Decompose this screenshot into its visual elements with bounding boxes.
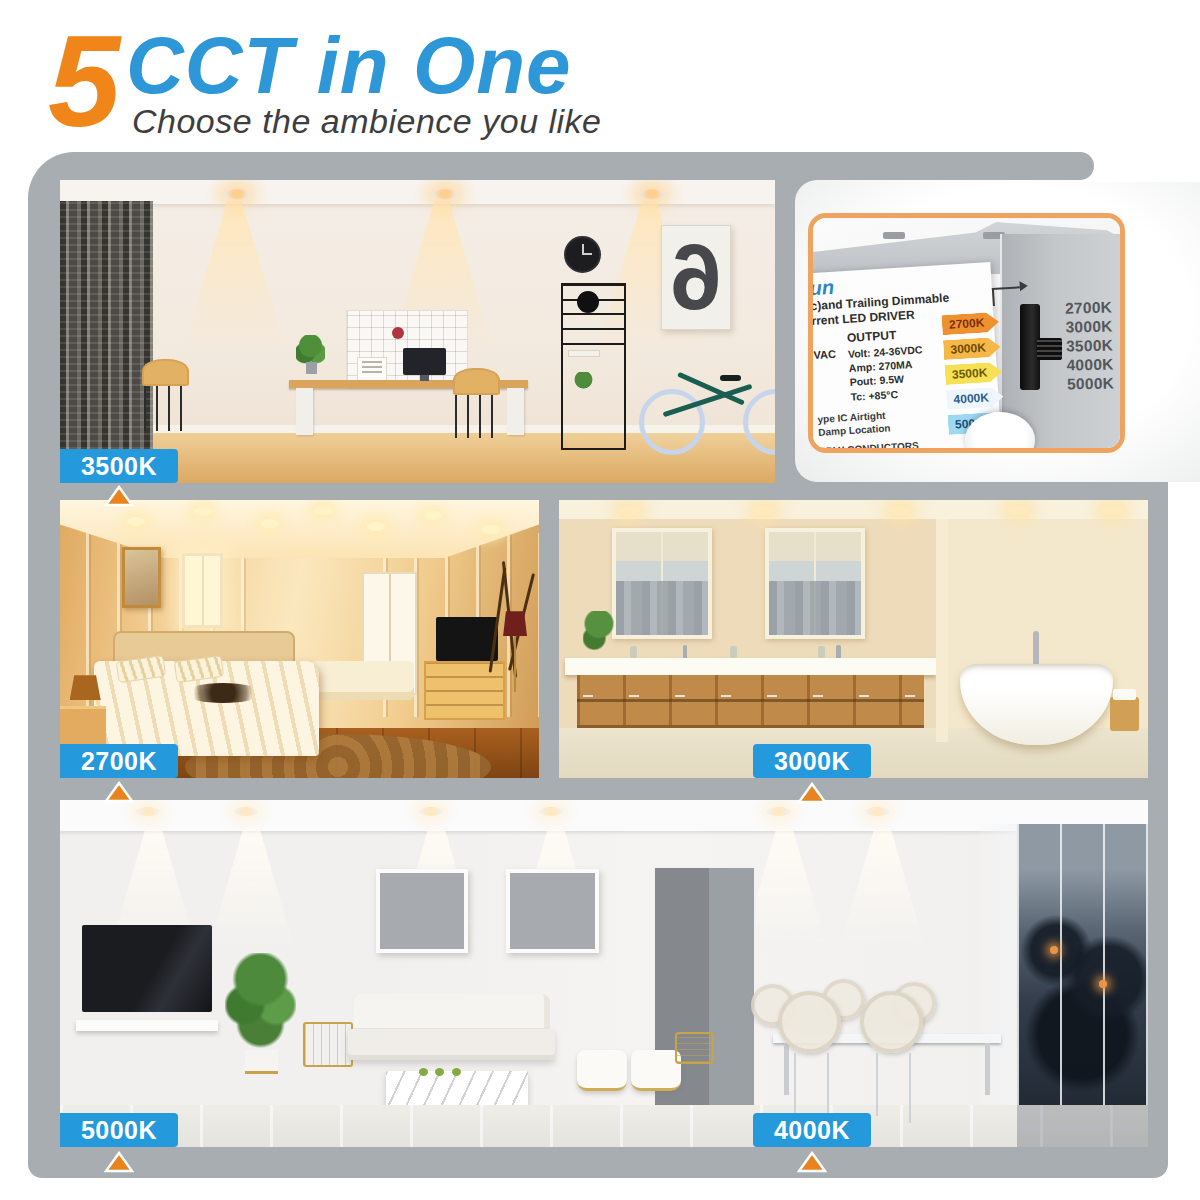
office-chair-legs: [455, 395, 498, 437]
counter-bottle: [818, 646, 825, 659]
cct-tag-3500k: 3500K: [944, 362, 1002, 385]
photo-home-office-3500k: 6: [60, 180, 775, 483]
cct-tag-4000k: 4000K: [946, 387, 1004, 410]
cct-label-2700k: 2700K: [60, 744, 178, 778]
wall-clock: [564, 236, 601, 273]
cct-label-3000k: 3000K: [753, 744, 871, 778]
sink-faucet: [683, 645, 688, 659]
recessed-downlight: [136, 807, 160, 816]
shelf-plant: [571, 372, 595, 390]
poster-number: 6: [670, 225, 721, 330]
cct-switch-knob: [1037, 338, 1062, 360]
recessed-downlight: [539, 807, 563, 816]
living-plant: [225, 953, 296, 1057]
scale-4000k: 4000K: [1066, 354, 1114, 374]
ceiling-light: [314, 506, 332, 515]
nightstand: [60, 706, 106, 748]
scale-2700k: 2700K: [1065, 297, 1113, 317]
bedroom-sofa: [309, 661, 414, 700]
cct-switch-scale: 2700K 3000K 3500K 4000K 5000K: [1065, 297, 1115, 393]
driver-input-fragment: VAC: [813, 348, 839, 406]
driver-top-notch: [883, 232, 905, 239]
ceiling-light: [194, 507, 212, 516]
cct-tag-2700k: 2700K: [941, 312, 999, 335]
wall-art-frame: [376, 869, 468, 952]
sofa-back: [354, 994, 550, 1032]
bathroom-divider: [936, 519, 948, 741]
shelf-books: [568, 350, 600, 358]
dining-chair-leg: [876, 1053, 878, 1115]
dining-chair-leg: [909, 1053, 911, 1122]
sofa-seat: [348, 1029, 555, 1060]
recessed-downlight: [234, 807, 258, 816]
wall-mounted-tv: [82, 925, 213, 1012]
office-desk-leg: [296, 388, 313, 435]
recessed-downlight: [419, 807, 443, 816]
stool-towels: [1113, 689, 1137, 700]
pointer-triangle-3000k: [797, 782, 827, 804]
office-chair-legs: [144, 386, 187, 431]
office-chair: [453, 368, 499, 395]
top-strip-rounded-end: [1052, 152, 1094, 180]
dining-chair: [778, 991, 841, 1053]
vanity-counter: [565, 658, 936, 675]
recessed-downlight: [1101, 506, 1123, 515]
sink-faucet: [836, 645, 841, 659]
headphones: [392, 327, 404, 339]
window-floor-reflection: [1017, 1105, 1148, 1147]
ceiling-light: [367, 522, 385, 531]
cct-label-5000k: 5000K: [60, 1113, 178, 1147]
page-title: CCT in One: [126, 26, 572, 106]
dining-table-leg: [985, 1043, 990, 1095]
recessed-downlight: [753, 506, 775, 515]
big-number-5: 5: [48, 16, 120, 146]
scale-3500k: 3500K: [1066, 335, 1114, 355]
photo-bathroom-3000k: [559, 500, 1148, 778]
bathroom-stool: [1110, 697, 1139, 730]
bicycle-seat: [720, 375, 741, 380]
dining-chair-leg: [794, 1053, 796, 1115]
counter-bottle: [630, 646, 637, 659]
nightstand-lamp: [70, 675, 101, 700]
dining-chair: [860, 991, 923, 1053]
switch-pointer-arrow: [992, 286, 1021, 306]
pointer-triangle-5000k: [104, 1151, 134, 1173]
office-desk-plant: [296, 335, 325, 365]
counter-bottle: [730, 646, 737, 659]
office-lightbox-sign: [357, 357, 387, 381]
driver-note: LIMENTATIO: [820, 447, 998, 453]
page-subtitle: Choose the ambience you like: [132, 102, 602, 141]
bathroom-ceiling: [559, 500, 1148, 519]
dining-table-leg: [784, 1043, 789, 1095]
top-strip-cover: [1080, 150, 1200, 182]
bicycle-rear-wheel: [639, 389, 705, 455]
bed-floral-throw: [185, 683, 262, 702]
number-6-poster: 6: [661, 225, 731, 330]
photo-living-room: [60, 800, 1148, 1147]
office-desk-leg: [507, 388, 524, 435]
recessed-downlight: [889, 506, 911, 515]
photo-bedroom-2700k: [60, 500, 539, 778]
office-curtain-texture: [60, 201, 153, 456]
wall-art-frame: [506, 869, 598, 952]
ceiling-light: [482, 525, 500, 534]
white-pouf: [631, 1050, 681, 1092]
office-ceiling: [60, 180, 775, 204]
white-pouf: [577, 1050, 627, 1092]
shelf-decor-ball: [577, 291, 599, 313]
recessed-downlight: [618, 506, 640, 515]
recessed-downlight: [1007, 506, 1029, 515]
office-chair: [142, 359, 188, 386]
cct-tag-3000k: 3000K: [943, 337, 1001, 360]
scale-3000k: 3000K: [1065, 316, 1113, 336]
tv-media-shelf: [76, 1020, 217, 1030]
led-driver-photo-card: un c)and Trailing Dimmable rrent LED DRI…: [808, 213, 1125, 453]
living-plant-pot: [245, 1050, 278, 1074]
green-apple: [452, 1068, 461, 1076]
bathroom-window: [612, 528, 712, 639]
pointer-triangle-3500k: [104, 485, 134, 507]
recessed-downlight: [767, 807, 791, 816]
office-monitor-stand: [420, 375, 429, 381]
scale-5000k: 5000K: [1067, 373, 1115, 393]
gold-wire-side-table: [303, 1022, 353, 1067]
cct-label-4000k: 4000K: [753, 1113, 871, 1147]
bedroom-dresser: [424, 661, 505, 719]
pointer-triangle-2700k: [104, 781, 134, 803]
bedroom-window: [182, 553, 223, 628]
cct-label-3500k: 3500K: [60, 449, 178, 483]
ceiling-light: [127, 517, 145, 526]
bedroom-floor-lamp: [503, 611, 527, 636]
vanity-handles: [583, 695, 919, 697]
office-plant-pot: [306, 362, 317, 374]
window-mullions: [1017, 824, 1148, 1105]
pointer-triangle-4000k: [797, 1151, 827, 1173]
bathroom-window: [765, 528, 865, 639]
outdoor-light: [1050, 946, 1058, 954]
bedroom-tv: [436, 617, 498, 661]
recessed-downlight: [432, 189, 458, 199]
gold-wire-basket: [675, 1032, 714, 1063]
vanity-drawers: [577, 675, 925, 728]
tub-faucet: [1033, 631, 1039, 667]
living-floor: [60, 1105, 1148, 1147]
recessed-downlight: [865, 807, 889, 816]
bedroom-floor-lamp-stem: [514, 636, 516, 692]
bedroom-picture-frame: [122, 547, 160, 608]
office-monitor: [403, 348, 446, 375]
page: 5 CCT in One Choose the ambience you lik…: [0, 0, 1200, 1200]
green-apple: [419, 1068, 428, 1076]
bathroom-plant: [583, 611, 615, 653]
